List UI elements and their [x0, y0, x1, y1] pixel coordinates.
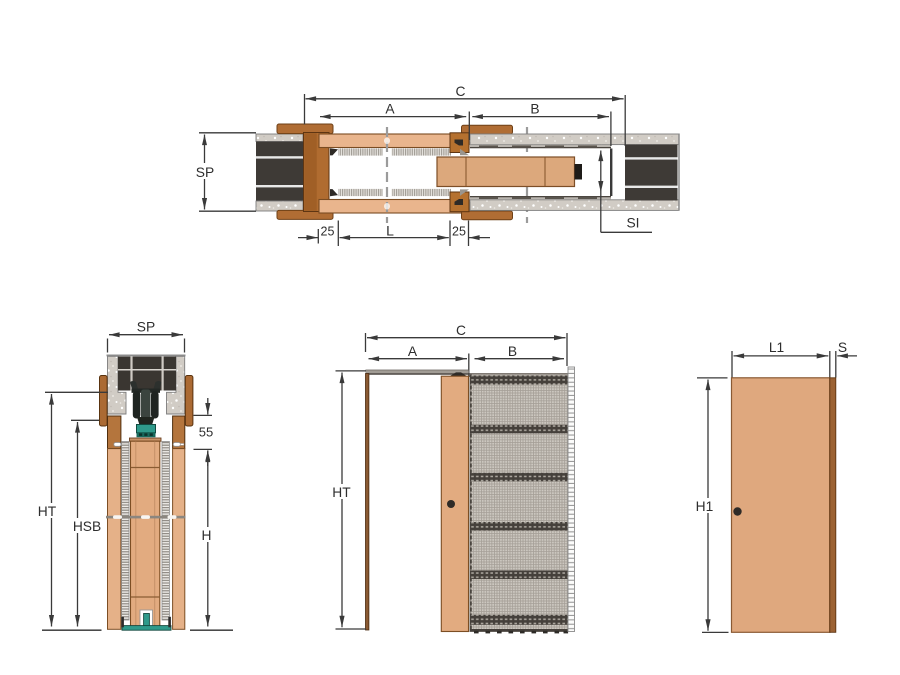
svg-text:HT: HT	[38, 504, 57, 519]
svg-text:H1: H1	[696, 499, 714, 514]
svg-text:HT: HT	[332, 485, 351, 500]
svg-text:55: 55	[199, 425, 213, 440]
svg-text:A: A	[385, 102, 395, 117]
svg-text:B: B	[508, 344, 517, 359]
svg-text:L: L	[386, 223, 394, 239]
svg-text:SI: SI	[626, 216, 639, 231]
svg-text:C: C	[456, 84, 466, 99]
svg-text:L1: L1	[769, 340, 784, 355]
svg-text:C: C	[456, 323, 466, 338]
svg-text:HSB: HSB	[73, 519, 101, 534]
svg-text:SP: SP	[137, 320, 155, 335]
svg-text:B: B	[530, 102, 539, 117]
svg-text:A: A	[408, 344, 418, 359]
svg-text:SP: SP	[196, 165, 214, 180]
svg-text:S: S	[838, 340, 847, 355]
svg-text:H: H	[202, 528, 212, 543]
svg-text:25: 25	[452, 225, 466, 239]
svg-text:25: 25	[321, 225, 335, 239]
